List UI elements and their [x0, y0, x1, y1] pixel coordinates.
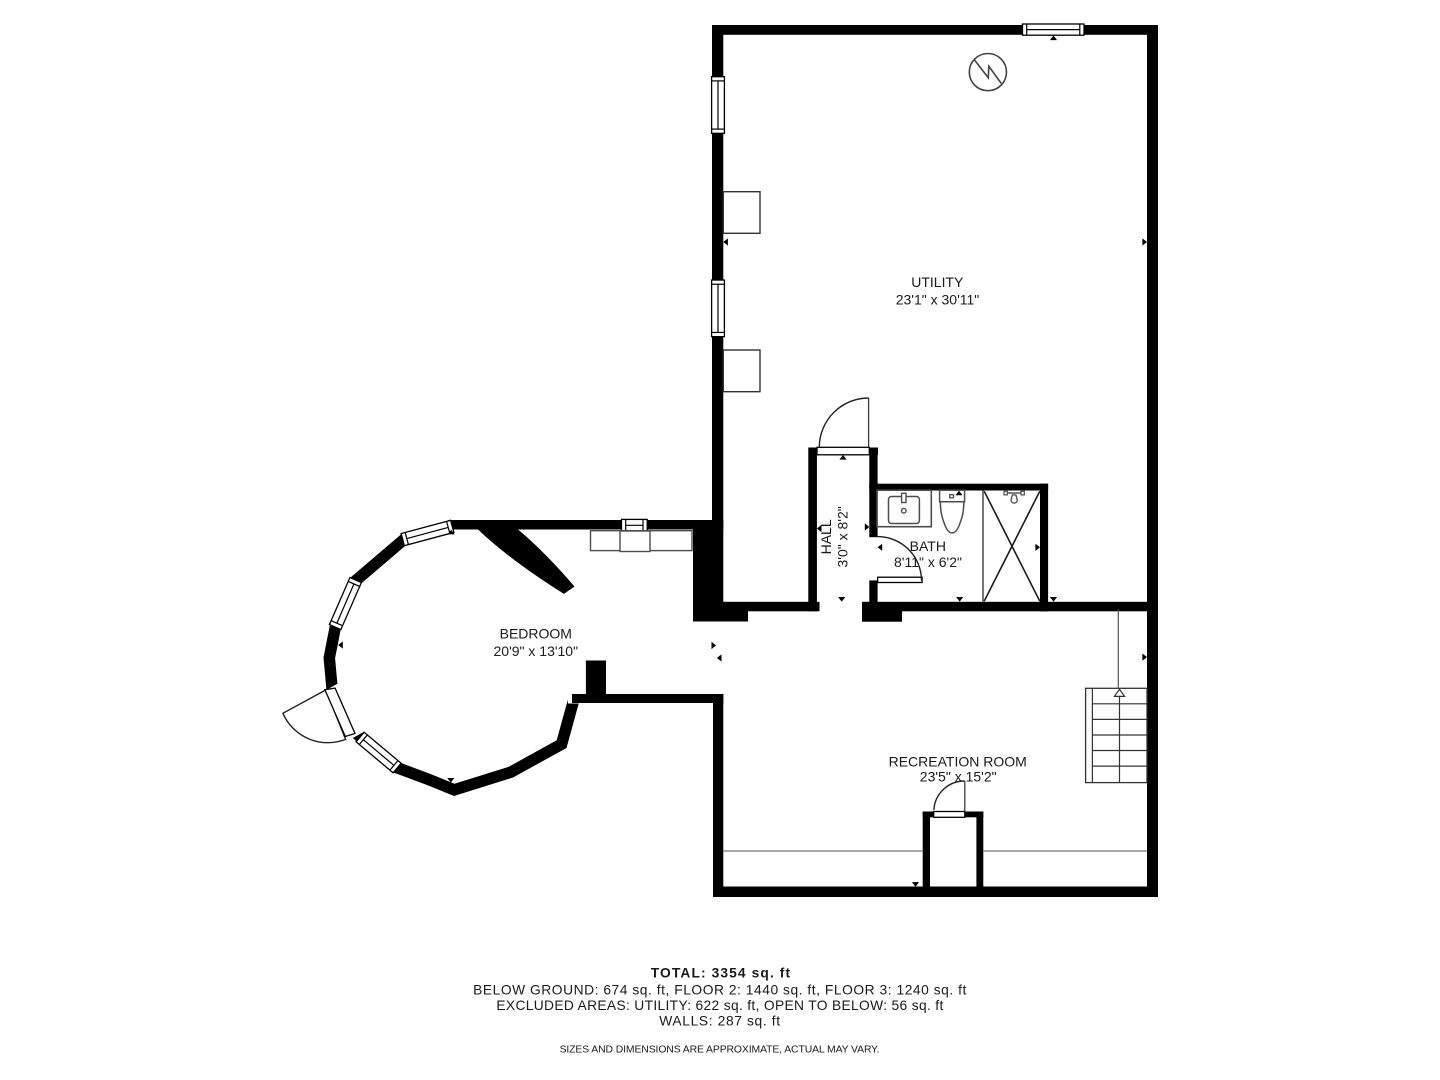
svg-text:8'11" x 6'2": 8'11" x 6'2"	[894, 554, 962, 570]
svg-text:23'1" x 30'11": 23'1" x 30'11"	[896, 292, 980, 308]
svg-text:HALL: HALL	[818, 519, 834, 554]
svg-text:SIZES AND DIMENSIONS ARE APPRO: SIZES AND DIMENSIONS ARE APPROXIMATE, AC…	[560, 1044, 880, 1055]
svg-text:UTILITY: UTILITY	[911, 274, 964, 290]
svg-text:EXCLUDED AREAS: UTILITY: 622 s: EXCLUDED AREAS: UTILITY: 622 sq. ft, OPE…	[496, 998, 943, 1013]
svg-text:23'5" x 15'2": 23'5" x 15'2"	[920, 769, 997, 785]
svg-text:RECREATION ROOM: RECREATION ROOM	[889, 753, 1027, 769]
svg-text:BEDROOM: BEDROOM	[500, 626, 572, 642]
svg-text:3'0" x 8'2": 3'0" x 8'2"	[835, 506, 851, 567]
svg-text:TOTAL: 3354 sq. ft: TOTAL: 3354 sq. ft	[651, 965, 791, 980]
svg-text:WALLS: 287 sq. ft: WALLS: 287 sq. ft	[659, 1013, 780, 1028]
svg-text:BELOW GROUND: 674 sq. ft, FLOO: BELOW GROUND: 674 sq. ft, FLOOR 2: 1440 …	[473, 983, 967, 998]
svg-text:20'9" x 13'10": 20'9" x 13'10"	[494, 643, 579, 659]
svg-text:BATH: BATH	[910, 538, 946, 554]
